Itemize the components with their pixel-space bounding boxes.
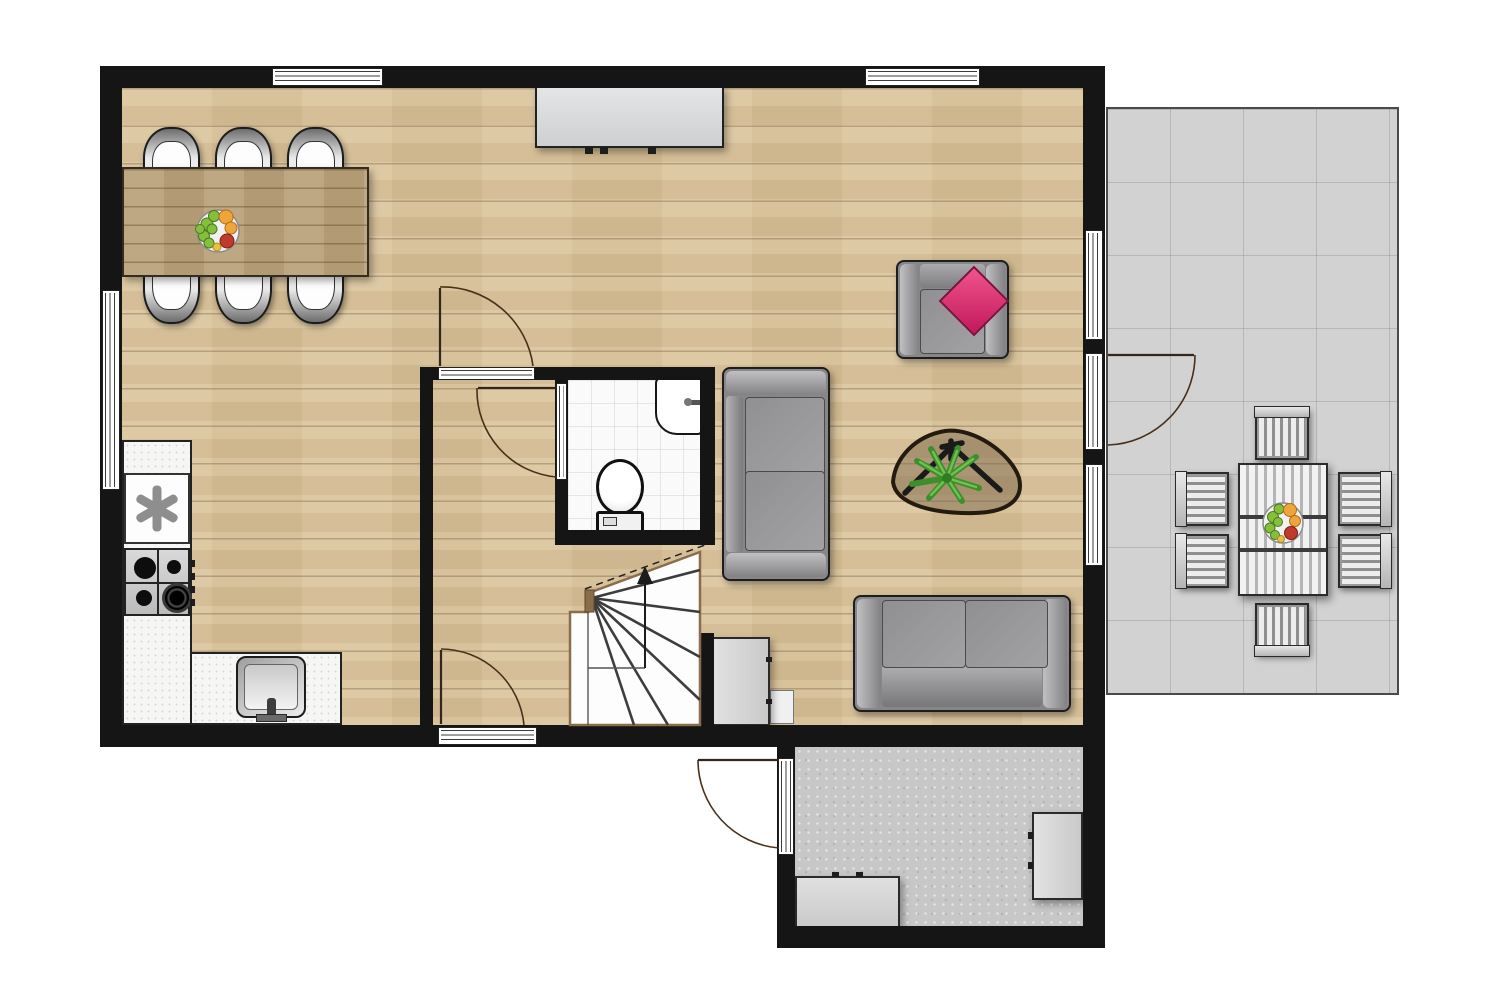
chair-slats bbox=[1181, 476, 1225, 522]
garden-chair-left-2 bbox=[1177, 534, 1229, 588]
basin-faucet-dot bbox=[684, 398, 692, 406]
kitchen-faucet-base bbox=[256, 714, 287, 722]
opening-bathroom-door bbox=[556, 383, 567, 480]
chair-backrest bbox=[1254, 645, 1310, 657]
table-rail bbox=[1240, 548, 1326, 552]
stove-4-burner bbox=[124, 548, 190, 616]
wall-bathroom-bottom bbox=[555, 530, 715, 545]
toilet-flush-button bbox=[603, 517, 617, 526]
burner-large bbox=[134, 557, 156, 579]
garden-chair-left-1 bbox=[1177, 472, 1229, 526]
window-top-right bbox=[865, 68, 980, 86]
shed-cabinet-bottom bbox=[795, 876, 900, 928]
armchair-armrest bbox=[900, 264, 919, 355]
cabinet-knob bbox=[766, 699, 772, 704]
burner-small bbox=[167, 560, 181, 574]
stove-knob bbox=[190, 586, 195, 593]
table-rail bbox=[1240, 515, 1326, 519]
shed-cabinet-right bbox=[1032, 812, 1083, 900]
stove-knob bbox=[190, 573, 195, 580]
window-right-upper bbox=[1085, 230, 1103, 340]
garden-chair-right-2 bbox=[1338, 534, 1390, 588]
bathroom-hand-basin bbox=[655, 377, 702, 435]
sofa-bottom bbox=[853, 595, 1071, 712]
small-white-unit bbox=[770, 690, 794, 724]
garden-chair-bottom bbox=[1255, 603, 1309, 655]
chair-backrest bbox=[1254, 406, 1310, 418]
burner-small bbox=[136, 590, 152, 606]
sideboard bbox=[535, 86, 724, 148]
wall-bottom bbox=[100, 725, 1105, 747]
door-arc-shed bbox=[698, 760, 779, 848]
chair-backrest bbox=[1380, 471, 1392, 527]
window-right-lower bbox=[1085, 464, 1103, 566]
sofa-armrest bbox=[726, 553, 826, 577]
toilet-bowl bbox=[596, 459, 644, 515]
floor-plan-canvas bbox=[0, 0, 1500, 999]
sofa-backrest bbox=[882, 665, 1042, 707]
cabinet-by-stairs bbox=[710, 637, 770, 726]
chair-slats bbox=[1181, 538, 1225, 584]
outdoor-dining-table bbox=[1238, 463, 1328, 596]
sideboard-foot bbox=[648, 147, 656, 154]
kitchen-appliance-asterisk bbox=[124, 473, 190, 544]
sofa-cushion bbox=[882, 600, 966, 668]
sideboard-foot bbox=[585, 147, 593, 154]
garden-chair-top bbox=[1255, 408, 1309, 460]
chair-backrest bbox=[1380, 533, 1392, 589]
shed-door-glazed bbox=[778, 758, 794, 855]
wall-hallway-left bbox=[420, 367, 433, 725]
terrace-floor bbox=[1106, 107, 1399, 695]
sofa-cushion bbox=[745, 397, 825, 477]
burner-large bbox=[162, 583, 192, 613]
sofa-armrest bbox=[857, 599, 881, 708]
sofa-cushion bbox=[745, 471, 825, 551]
cabinet-knob bbox=[1028, 862, 1033, 869]
cabinet-knob bbox=[1028, 832, 1033, 839]
sofa-armrest bbox=[726, 371, 826, 395]
wall-stair-stub bbox=[700, 633, 714, 725]
chair-backrest bbox=[1175, 533, 1187, 589]
stove-knob bbox=[190, 560, 195, 567]
window-left-wall bbox=[102, 290, 120, 490]
window-top-left bbox=[272, 68, 383, 86]
wall-bathroom-right bbox=[700, 367, 715, 545]
chair-slats bbox=[1259, 412, 1305, 456]
sofa-cushion bbox=[965, 600, 1048, 668]
terrace-door-glazed bbox=[1085, 353, 1103, 450]
chair-backrest bbox=[1175, 471, 1187, 527]
opening-hallway-door bbox=[438, 367, 535, 380]
cabinet-knob bbox=[856, 872, 863, 877]
cabinet-knob bbox=[832, 872, 839, 877]
wall-shed-bottom bbox=[777, 926, 1105, 948]
back-door-glazed bbox=[438, 727, 537, 745]
garden-chair-right-1 bbox=[1338, 472, 1390, 526]
cabinet-knob bbox=[766, 657, 772, 662]
dining-table bbox=[122, 167, 369, 277]
sofa-left bbox=[722, 367, 830, 581]
sofa-backrest bbox=[726, 396, 743, 552]
armchair bbox=[896, 260, 1009, 359]
sideboard-foot bbox=[600, 147, 608, 154]
stove-knob bbox=[190, 599, 195, 606]
